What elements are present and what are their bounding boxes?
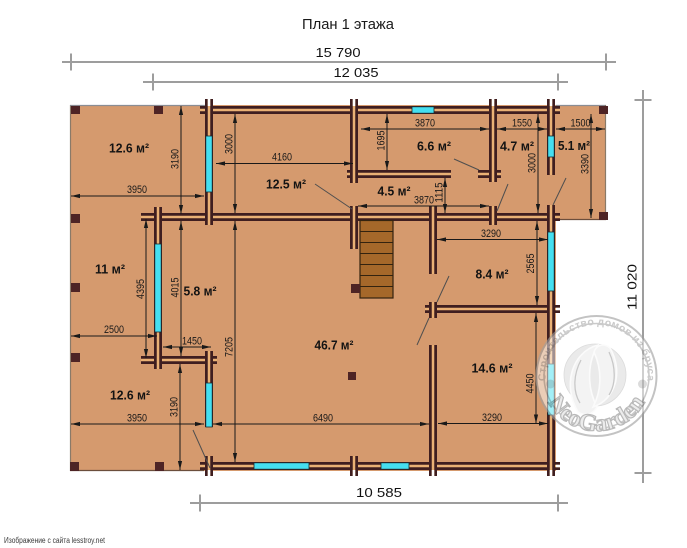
svg-text:46.7 м²: 46.7 м² (315, 339, 354, 353)
svg-text:12.6 м²: 12.6 м² (109, 142, 149, 156)
svg-text:3190: 3190 (169, 149, 181, 169)
svg-text:4450: 4450 (524, 374, 536, 394)
svg-text:4395: 4395 (135, 279, 147, 299)
svg-text:4015: 4015 (169, 278, 181, 298)
svg-text:4160: 4160 (272, 152, 292, 164)
svg-text:11 м²: 11 м² (95, 263, 125, 277)
svg-text:2565: 2565 (525, 254, 537, 274)
svg-text:3950: 3950 (127, 413, 147, 425)
svg-text:3290: 3290 (481, 228, 501, 240)
svg-text:3000: 3000 (223, 134, 235, 154)
svg-text:3000: 3000 (526, 153, 538, 173)
svg-text:3290: 3290 (482, 412, 502, 424)
svg-text:4.5 м²: 4.5 м² (378, 185, 411, 199)
svg-text:7205: 7205 (223, 337, 235, 357)
svg-text:1500: 1500 (571, 118, 591, 130)
svg-text:3870: 3870 (415, 118, 435, 130)
svg-text:14.6 м²: 14.6 м² (472, 362, 513, 376)
svg-text:3870: 3870 (414, 195, 434, 207)
svg-text:2500: 2500 (104, 324, 124, 336)
svg-text:План 1 этажа: План 1 этажа (302, 16, 395, 33)
svg-text:8.4 м²: 8.4 м² (476, 268, 509, 282)
svg-text:12.6 м²: 12.6 м² (110, 389, 150, 403)
svg-text:12 035: 12 035 (334, 65, 379, 80)
svg-text:3950: 3950 (127, 184, 147, 196)
svg-text:3190: 3190 (168, 397, 180, 417)
svg-text:11 020: 11 020 (624, 264, 639, 310)
svg-text:6490: 6490 (313, 413, 333, 425)
svg-text:1115: 1115 (433, 183, 445, 203)
svg-text:Изображение с сайта lesstroy.n: Изображение с сайта lesstroy.net (4, 536, 106, 545)
svg-text:1550: 1550 (512, 118, 532, 130)
svg-text:1450: 1450 (182, 336, 202, 348)
svg-text:6.6 м²: 6.6 м² (417, 140, 451, 154)
svg-text:3390: 3390 (579, 154, 591, 174)
svg-text:5.1 м²: 5.1 м² (558, 139, 590, 153)
svg-text:10 585: 10 585 (356, 485, 402, 500)
svg-text:4.7 м²: 4.7 м² (500, 140, 534, 154)
svg-text:15 790: 15 790 (316, 45, 361, 60)
svg-text:5.8 м²: 5.8 м² (184, 285, 217, 299)
svg-text:1695: 1695 (375, 131, 387, 151)
svg-text:12.5 м²: 12.5 м² (266, 178, 306, 192)
